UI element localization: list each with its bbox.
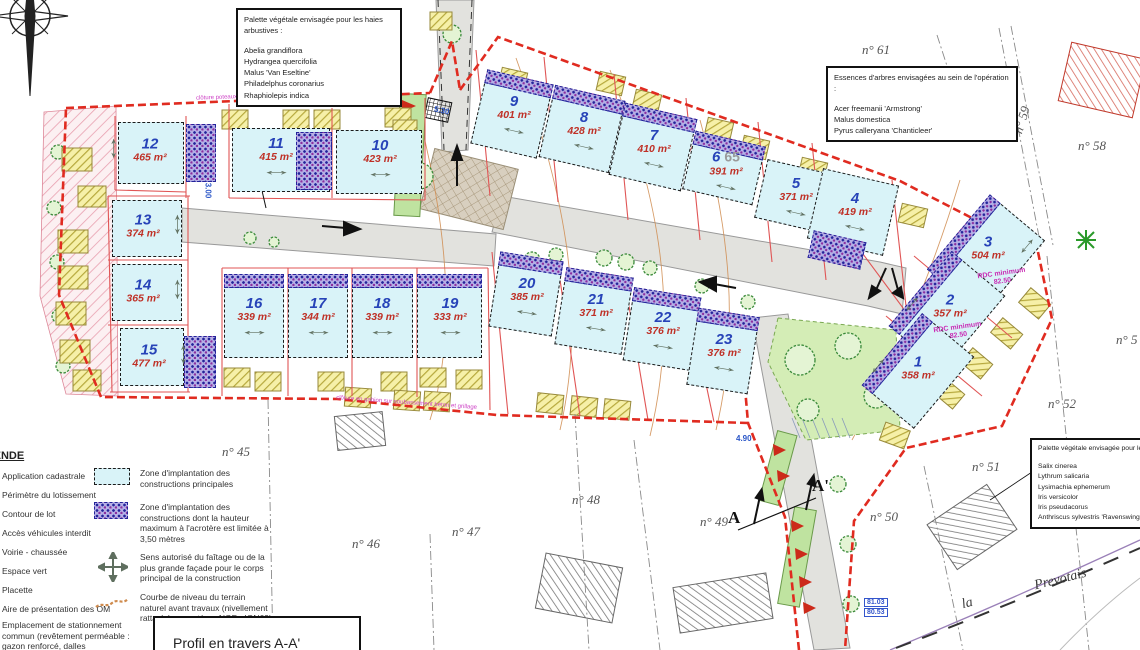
limited-height-zone xyxy=(184,336,216,388)
ridge-arrow-icon: ↔ xyxy=(363,165,397,180)
legend-item: Placette xyxy=(2,585,33,596)
legend-item: Zone d'implantation des constructions do… xyxy=(140,502,272,545)
lot-23-label: 23376 m²↔ xyxy=(707,332,740,376)
ridge-arrow-icon: ↕ xyxy=(173,207,182,241)
boundary-marker xyxy=(1076,230,1096,250)
box-title: Palette végétale envisagée pour les haie… xyxy=(244,14,394,37)
wet-palette-box: Palette végétale envisagée pour le Salix… xyxy=(1030,438,1140,529)
lot-13-label: ↕13374 m² xyxy=(126,213,159,240)
shrub-palette-box: Palette végétale envisagée pour les haie… xyxy=(236,8,402,107)
lot-22-label: 22376 m²↔ xyxy=(646,310,679,354)
section-marker-a-prime: A' xyxy=(812,476,829,496)
legend-swatch-main-zone xyxy=(94,468,130,485)
limited-height-zone xyxy=(296,132,332,190)
parcel-label: n° 47 xyxy=(452,524,480,540)
legend-ridge-arrows-icon xyxy=(98,552,128,585)
lot-3-label: ↕3504 m² xyxy=(971,235,1004,262)
lot-number: 13 xyxy=(126,213,159,229)
legend-title: LÉGENDE xyxy=(0,450,24,464)
lot-number: 6 xyxy=(712,149,720,166)
lot-number: 4 xyxy=(838,191,871,207)
lot-number: 15 xyxy=(132,343,165,359)
legend-item: Application cadastrale xyxy=(2,471,85,482)
lot-16-label: 16339 m²↔ xyxy=(237,296,270,340)
legend-item: Contour de lot xyxy=(2,509,55,520)
ridge-arrow-icon: ↕ xyxy=(173,272,182,306)
lot-area: 504 m² xyxy=(971,250,1004,261)
parcel-label: n° 48 xyxy=(572,492,600,508)
lot-4-label: 4419 m²↔ xyxy=(838,191,871,235)
lot-17-label: 17344 m²↔ xyxy=(301,296,334,340)
legend-item: Sens autorisé du faîtage ou de la plus g… xyxy=(140,552,272,584)
parcel-label: n° 46 xyxy=(352,536,380,552)
parcel-label: n° 52 xyxy=(1048,396,1076,412)
lot-number: 7 xyxy=(637,128,670,144)
lot-number: 23 xyxy=(707,332,740,348)
lot-6-label: 665391 m²↔ xyxy=(709,150,742,195)
lot-2-label: ↕2357 m² xyxy=(933,293,966,320)
lot-area: 358 m² xyxy=(901,370,934,381)
ridge-arrow-icon: ↔ xyxy=(645,334,680,354)
lot-10-label: 10423 m²↔ xyxy=(363,138,396,182)
legend-contour-icon xyxy=(94,596,130,613)
lot-area: 365 m² xyxy=(126,293,159,304)
lot-14-label: ↕14365 m² xyxy=(126,278,159,305)
ridge-arrow-icon: ↔ xyxy=(237,323,271,338)
lot-12-label: ↕12465 m² xyxy=(133,137,166,164)
parcel-65-label: 65 xyxy=(724,149,740,165)
lot-number: 8 xyxy=(567,110,600,126)
profile-box: Profil en travers A-A' xyxy=(153,616,361,650)
ridge-arrow-icon: ↔ xyxy=(301,323,335,338)
tree-species-box: Essences d'arbres envisagées au sein de … xyxy=(826,66,1018,142)
parcel-label: n° 50 xyxy=(870,509,898,525)
lot-area: 357 m² xyxy=(933,308,966,319)
legend-item: Accès véhicules interdit xyxy=(2,528,91,539)
lot-5-label: 5371 m²↔ xyxy=(779,176,812,220)
lot-number: 9 xyxy=(497,94,530,110)
lot-area: 465 m² xyxy=(133,152,166,163)
legend-item: Périmètre du lotissement xyxy=(2,490,96,501)
dimension-label: 3.00 xyxy=(203,183,212,199)
lot-9-label: 9401 m²↔ xyxy=(497,94,530,138)
lot-11-label: 11415 m²↔ xyxy=(259,136,292,180)
lot-number: 20 xyxy=(510,276,543,292)
lot-number: 12 xyxy=(133,137,166,153)
lot-number: 18 xyxy=(365,296,398,312)
legend-swatch-limited-zone xyxy=(94,502,128,519)
ridge-arrow-icon: ↕ xyxy=(179,337,188,371)
legend-item: Emplacement de stationnement commun (rev… xyxy=(2,620,130,650)
parcel-label: n° 49 xyxy=(700,514,728,530)
lot-8-label: 8428 m²↔ xyxy=(567,110,600,154)
parcel-label: n° 51 xyxy=(972,459,1000,475)
lot-number: 5 xyxy=(779,176,812,192)
section-marker-a: A xyxy=(728,508,740,528)
lot-15-label: ↕15477 m² xyxy=(132,343,165,370)
legend: LÉGENDE Application cadastrale Périmètre… xyxy=(2,450,302,464)
ridge-arrow-icon: ↔ xyxy=(259,163,293,178)
box-title: Palette végétale envisagée pour le xyxy=(1038,444,1140,454)
lot-7-label: 7410 m²↔ xyxy=(637,128,670,172)
lot-number: 16 xyxy=(237,296,270,312)
subdivision-plan: ↕12465 m² 11415 m²↔ 10423 m²↔ ↕13374 m² … xyxy=(0,0,1140,650)
legend-item: Espace vert xyxy=(2,566,47,577)
lot-number: 14 xyxy=(126,278,159,294)
level-values: 81.0380.53 xyxy=(864,598,888,618)
lot-number: 1 xyxy=(901,355,934,371)
lot-number: 19 xyxy=(433,296,466,312)
box-title: Essences d'arbres envisagées au sein de … xyxy=(834,72,1010,95)
profile-title: Profil en travers A-A' xyxy=(173,635,300,650)
parcel-label: n° 61 xyxy=(862,42,890,58)
lot-number: 11 xyxy=(259,136,292,152)
ridge-arrow-icon: ↔ xyxy=(365,323,399,338)
lot-area: 477 m² xyxy=(132,358,165,369)
lot-1-label: ↕1358 m² xyxy=(901,355,934,382)
lot-number: 10 xyxy=(363,138,396,154)
ridge-arrow-icon: ↔ xyxy=(578,316,613,336)
ridge-arrow-icon: ↔ xyxy=(706,356,741,376)
lot-21-label: 21371 m²↔ xyxy=(579,292,612,336)
dimension-label: 4.90 xyxy=(736,434,752,443)
lot-19-label: 19333 m²↔ xyxy=(433,296,466,340)
parcel-label: n° 58 xyxy=(1078,138,1106,154)
ridge-arrow-icon: ↔ xyxy=(509,300,544,320)
lot-area: 374 m² xyxy=(126,228,159,239)
legend-item: Voirie - chaussée xyxy=(2,547,67,558)
parcel-label: n° 5 xyxy=(1116,332,1137,348)
lot-18-label: 18339 m²↔ xyxy=(365,296,398,340)
lot-20-label: 20385 m²↔ xyxy=(510,276,543,320)
limited-height-zone xyxy=(186,124,216,182)
ridge-arrow-icon: ↔ xyxy=(433,323,467,338)
lot-number: 2 xyxy=(933,293,966,309)
ridge-arrow-icon: ↕ xyxy=(109,131,118,165)
lot-number: 22 xyxy=(646,310,679,326)
legend-item: Zone d'implantation des constructions pr… xyxy=(140,468,272,489)
lot-number: 21 xyxy=(579,292,612,308)
lot-number: 3 xyxy=(971,235,1004,251)
lot-number: 17 xyxy=(301,296,334,312)
